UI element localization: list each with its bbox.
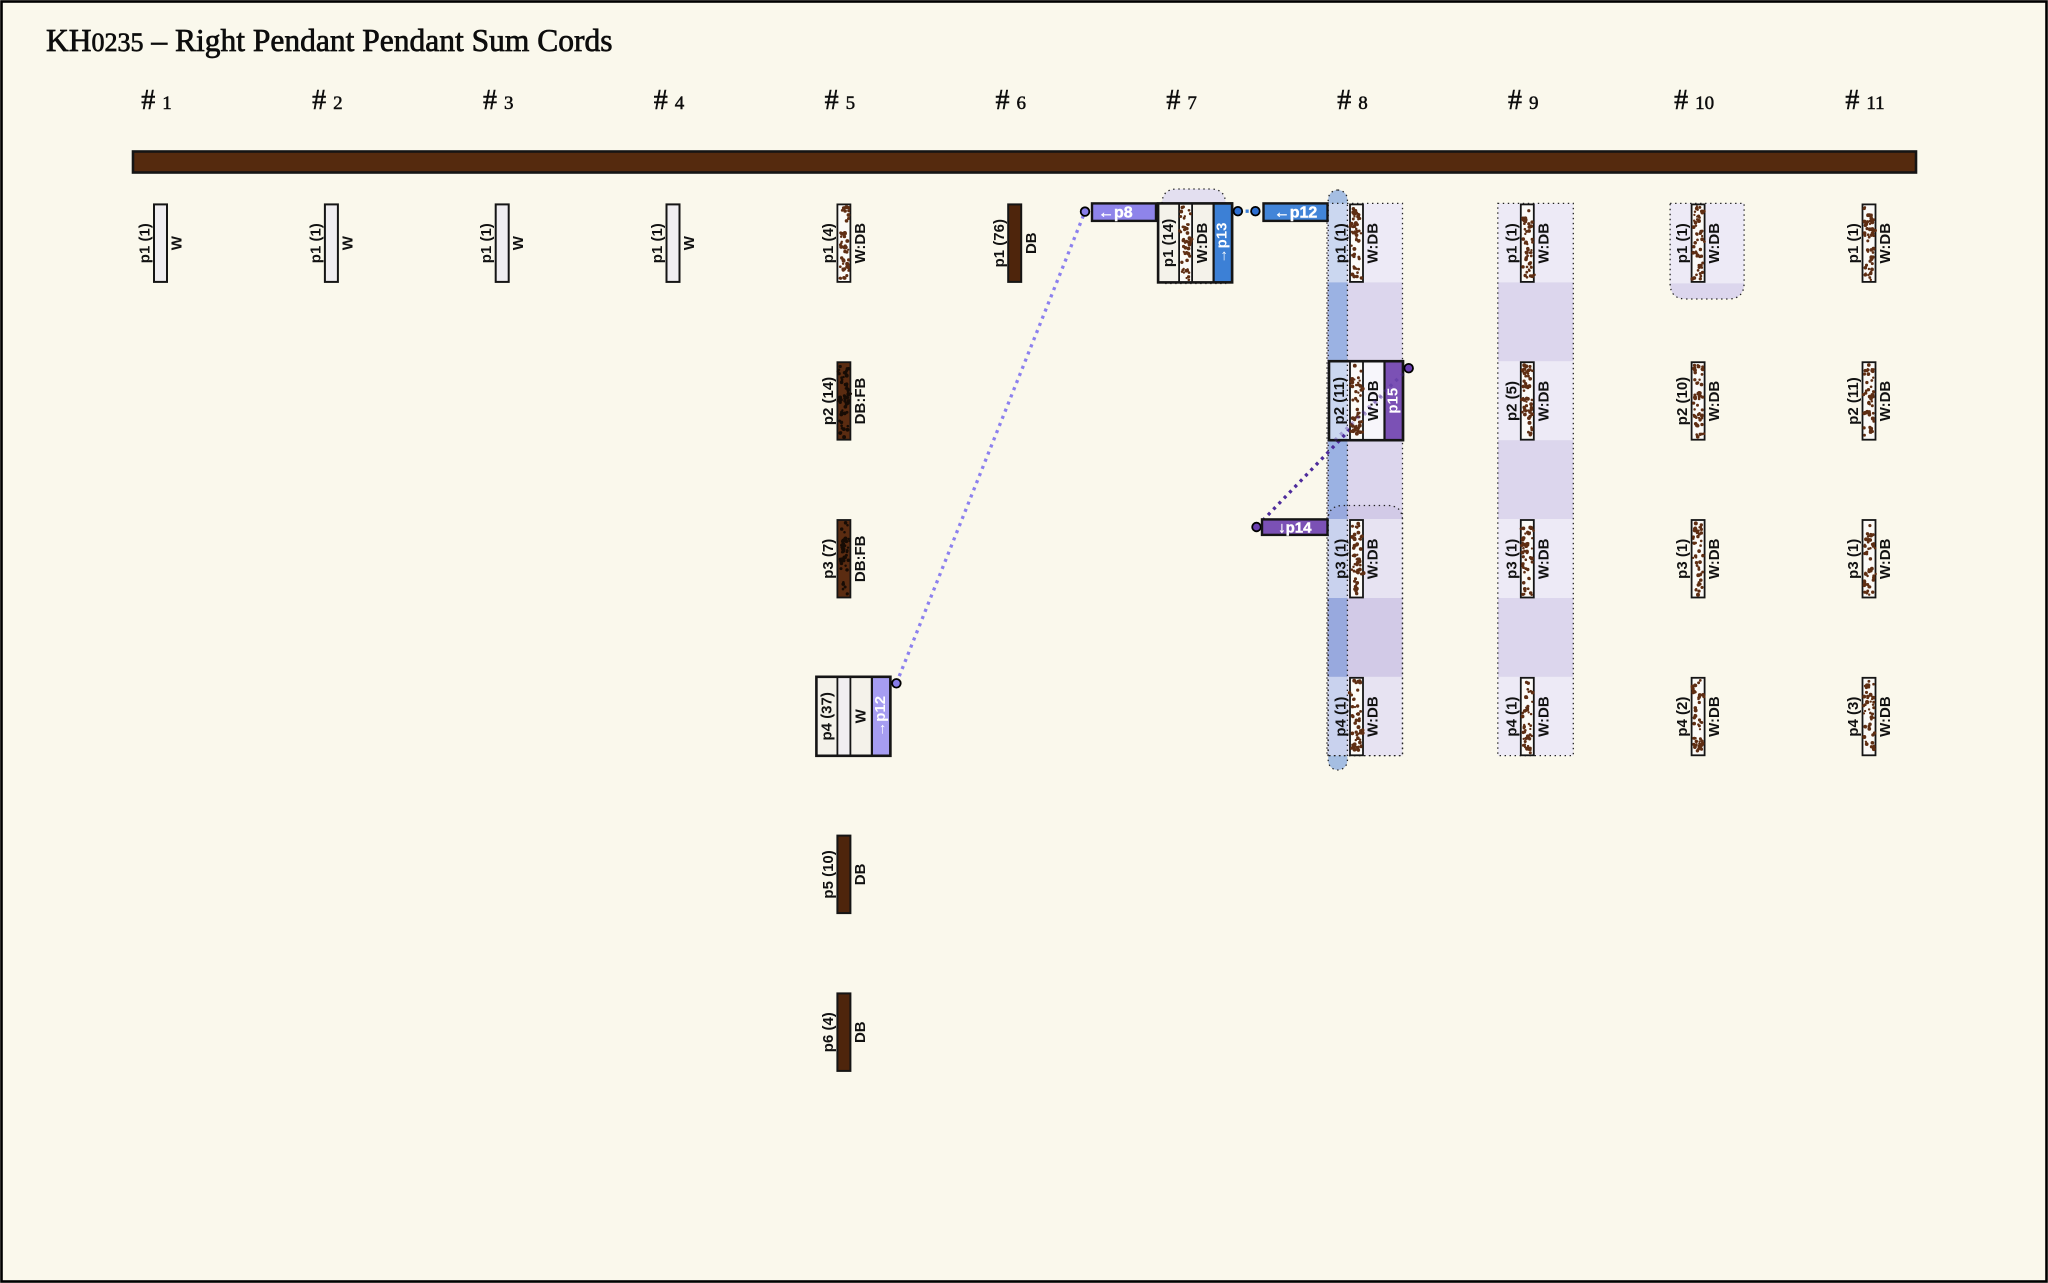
svg-text:W: W	[681, 235, 698, 250]
svg-text:W:DB: W:DB	[1365, 223, 1382, 264]
svg-text:p4 (1): p4 (1)	[1333, 697, 1350, 737]
svg-text:p1 (1): p1 (1)	[1503, 223, 1520, 263]
svg-text:W:DB: W:DB	[1706, 381, 1723, 422]
svg-text:p2 (11): p2 (11)	[1331, 377, 1348, 425]
svg-text:p5 (10): p5 (10)	[820, 850, 837, 898]
svg-text:W:DB: W:DB	[1877, 538, 1894, 579]
svg-text:p4 (2): p4 (2)	[1674, 697, 1691, 737]
svg-text:p1 (76): p1 (76)	[991, 219, 1008, 267]
svg-text:W:DB: W:DB	[1535, 223, 1552, 264]
svg-text:p3 (7): p3 (7)	[820, 539, 837, 579]
svg-text:p3 (1): p3 (1)	[1503, 539, 1520, 579]
svg-text:p4 (37): p4 (37)	[818, 692, 835, 740]
svg-text:W:DB: W:DB	[1535, 381, 1552, 422]
svg-text:p1 (1): p1 (1)	[1333, 223, 1350, 263]
svg-text:W:DB: W:DB	[1706, 223, 1723, 264]
svg-text:KH0235 – Right Pendant Pendant: KH0235 – Right Pendant Pendant Sum Cords	[46, 23, 613, 58]
svg-text:W:DB: W:DB	[1535, 538, 1552, 579]
svg-text:→p13: →p13	[1214, 222, 1231, 263]
svg-text:W:DB: W:DB	[1535, 696, 1552, 737]
svg-text:p2 (11): p2 (11)	[1845, 377, 1862, 425]
svg-text:←p12: ←p12	[1274, 205, 1318, 222]
svg-text:p1 (1): p1 (1)	[1845, 223, 1862, 263]
svg-text:p6 (4): p6 (4)	[820, 1012, 837, 1052]
svg-text:W: W	[339, 235, 356, 250]
svg-text:p1 (4): p1 (4)	[820, 223, 837, 263]
svg-text:p1 (1): p1 (1)	[1674, 223, 1691, 263]
svg-text:W:DB: W:DB	[1365, 696, 1382, 737]
svg-text:DB:FB: DB:FB	[852, 378, 869, 425]
svg-text:W:DB: W:DB	[1877, 381, 1894, 422]
svg-text:←p8: ←p8	[1098, 205, 1133, 222]
svg-text:W: W	[169, 235, 186, 250]
svg-text:DB:FB: DB:FB	[852, 535, 869, 582]
svg-text:p3 (1): p3 (1)	[1333, 539, 1350, 579]
svg-text:p3 (1): p3 (1)	[1845, 539, 1862, 579]
svg-text:p1 (1): p1 (1)	[307, 223, 324, 263]
svg-text:W:DB: W:DB	[1194, 222, 1211, 263]
svg-text:p4 (1): p4 (1)	[1503, 697, 1520, 737]
svg-text:p1 (1): p1 (1)	[137, 223, 154, 263]
svg-text:W:DB: W:DB	[1877, 223, 1894, 264]
svg-text:p1 (14): p1 (14)	[1160, 219, 1177, 267]
svg-text:p2 (10): p2 (10)	[1674, 377, 1691, 425]
svg-text:W:DB: W:DB	[1365, 538, 1382, 579]
svg-text:W:DB: W:DB	[1706, 696, 1723, 737]
svg-text:W: W	[852, 708, 869, 723]
svg-text:p2 (14): p2 (14)	[820, 377, 837, 425]
svg-text:DB: DB	[852, 1021, 869, 1043]
svg-text:W:DB: W:DB	[1877, 696, 1894, 737]
svg-text:W:DB: W:DB	[1706, 538, 1723, 579]
svg-text:p3 (1): p3 (1)	[1674, 539, 1691, 579]
svg-text:p15: p15	[1385, 388, 1402, 414]
svg-text:DB: DB	[1023, 232, 1040, 254]
svg-text:p1 (1): p1 (1)	[478, 223, 495, 263]
svg-text:W:DB: W:DB	[852, 223, 869, 264]
svg-text:p2 (5): p2 (5)	[1503, 381, 1520, 421]
svg-text:DB: DB	[852, 863, 869, 885]
svg-text:→p12: →p12	[872, 696, 889, 737]
svg-text:W: W	[510, 235, 527, 250]
svg-text:p1 (1): p1 (1)	[649, 223, 666, 263]
svg-text:p4 (3): p4 (3)	[1845, 697, 1862, 737]
svg-text:↓p14: ↓p14	[1278, 520, 1312, 537]
